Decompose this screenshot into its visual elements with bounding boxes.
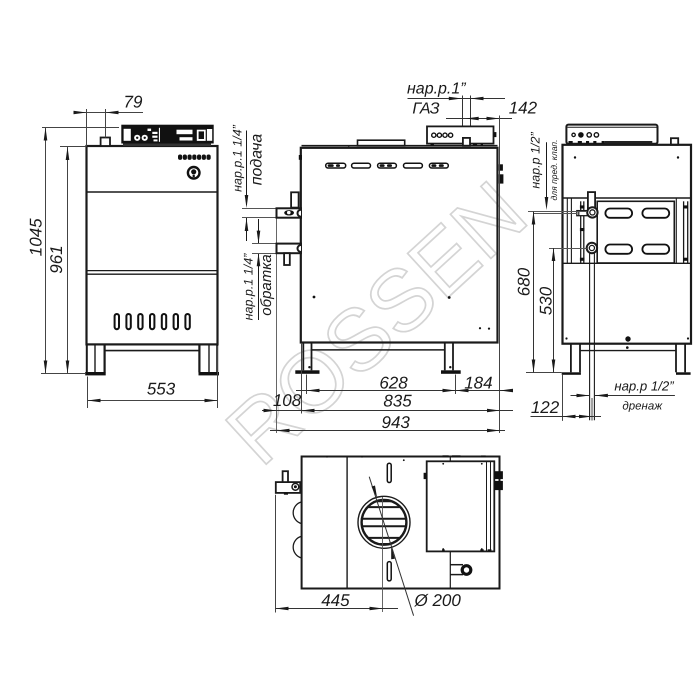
svg-text:108: 108 — [273, 391, 302, 410]
svg-text:680: 680 — [515, 267, 534, 296]
svg-text:184: 184 — [464, 373, 492, 392]
svg-text:нар.р 1/2”: нар.р 1/2” — [614, 379, 674, 394]
svg-text:835: 835 — [383, 392, 412, 411]
svg-text:обратка: обратка — [258, 254, 275, 315]
svg-text:445: 445 — [321, 591, 350, 610]
svg-text:142: 142 — [509, 98, 538, 117]
svg-text:122: 122 — [531, 398, 560, 417]
svg-text:943: 943 — [382, 413, 411, 432]
svg-text:Ø 200: Ø 200 — [414, 591, 462, 610]
svg-text:553: 553 — [147, 380, 176, 399]
svg-text:961: 961 — [47, 245, 66, 273]
svg-text:79: 79 — [124, 93, 143, 112]
svg-text:дренаж: дренаж — [622, 400, 663, 412]
svg-text:нар.р.1”: нар.р.1” — [407, 81, 466, 98]
svg-text:для пред. клап.: для пред. клап. — [549, 140, 559, 201]
svg-text:подача: подача — [249, 134, 266, 186]
svg-text:1045: 1045 — [27, 218, 46, 256]
svg-text:ГАЗ: ГАЗ — [412, 101, 439, 118]
svg-text:530: 530 — [537, 286, 556, 315]
svg-text:H: H — [199, 133, 204, 140]
svg-text:нар.р.1 1/4”: нар.р.1 1/4” — [242, 253, 256, 320]
svg-text:нар.р 1/2”: нар.р 1/2” — [529, 132, 543, 189]
svg-text:нар.р.1 1/4”: нар.р.1 1/4” — [231, 124, 245, 191]
svg-text:628: 628 — [379, 373, 408, 392]
